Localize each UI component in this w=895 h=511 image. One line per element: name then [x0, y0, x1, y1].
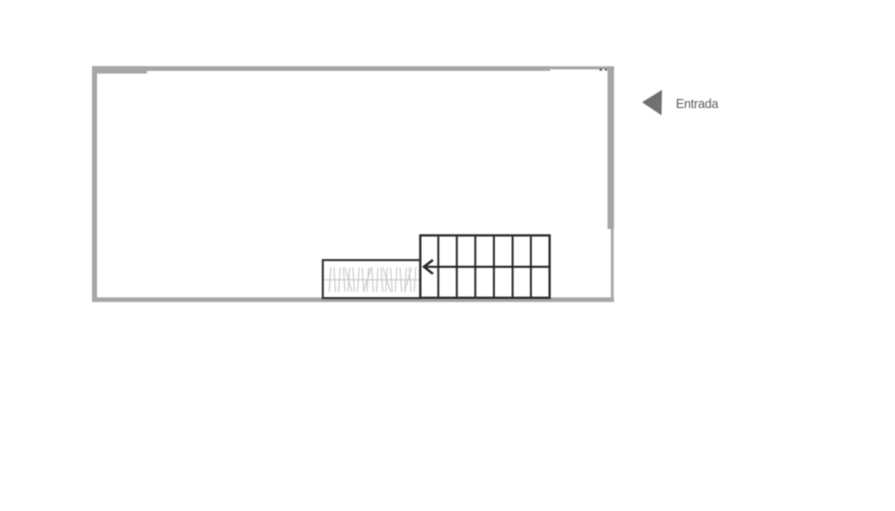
svg-text:Entrada: Entrada — [676, 97, 719, 111]
